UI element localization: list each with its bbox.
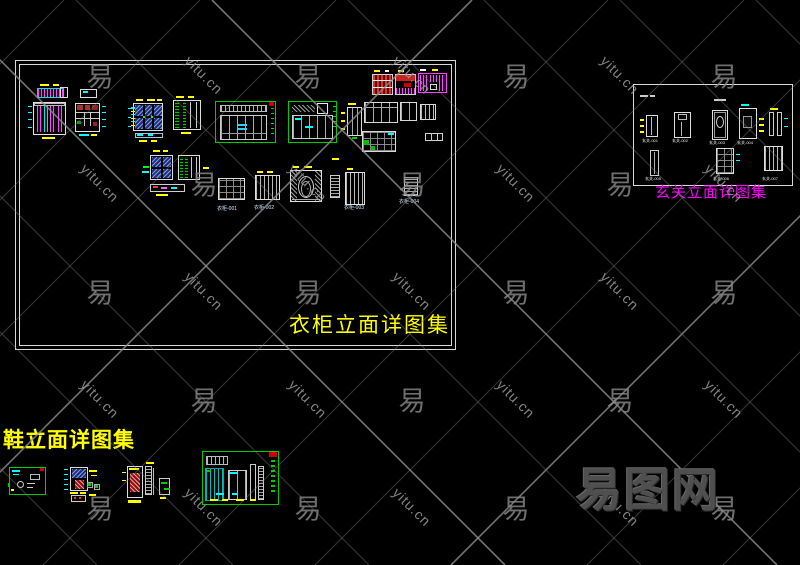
cad-shape: [83, 91, 88, 93]
cad-shape: [400, 102, 417, 121]
cad-shape: [317, 103, 328, 114]
cad-shape: [267, 171, 273, 173]
cad-shape: [292, 199, 320, 200]
cad-shape: [257, 171, 263, 173]
cad-shape: [159, 478, 170, 495]
cad-shape: [385, 70, 389, 72]
cad-shape: [89, 494, 96, 496]
cad-shape: [196, 157, 197, 178]
cad-shape: [75, 480, 84, 489]
cad-shape: [77, 105, 83, 110]
cad-shape: [148, 134, 153, 136]
cad-shape: [640, 119, 644, 121]
cad-shape: [64, 484, 68, 485]
drawing-label: 玄关-007: [762, 177, 778, 181]
cad-shape: [341, 120, 345, 122]
cad-shape: [196, 102, 197, 128]
cad-shape: [784, 126, 788, 127]
cad-shape: [76, 118, 99, 119]
cad-shape: [72, 469, 86, 478]
drawing-label: 玄关-005: [645, 177, 661, 181]
cad-shape: [271, 460, 275, 462]
entry-title: 玄关立面详图集: [655, 184, 767, 201]
cad-shape: [139, 140, 147, 142]
cad-shape: [332, 158, 339, 160]
cad-shape: [291, 171, 297, 201]
cad-shape: [183, 102, 186, 128]
cad-shape: [122, 480, 126, 481]
cad-shape: [357, 108, 358, 135]
cad-shape: [305, 126, 313, 128]
cad-shape: [205, 468, 224, 501]
cad-shape: [137, 134, 143, 136]
cad-shape: [164, 488, 170, 490]
cad-shape: [347, 107, 362, 136]
cad-shape: [157, 99, 162, 101]
cad-shape: [93, 122, 97, 126]
cad-shape: [40, 84, 49, 86]
cad-shape: [271, 470, 275, 472]
cad-shape: [221, 133, 266, 134]
cad-shape: [420, 75, 428, 91]
cad-shape: [271, 485, 275, 487]
cad-shape: [396, 88, 415, 94]
cad-shape: [153, 186, 158, 188]
cad-shape: [176, 96, 184, 98]
wardrobe-hatch-strip[interactable]: [404, 177, 418, 196]
cad-shape: [180, 157, 183, 178]
cad-shape: [271, 475, 275, 477]
cad-shape: [42, 137, 55, 139]
cad-shape: [650, 95, 655, 97]
cad-shape: [301, 181, 311, 197]
cad-shape: [53, 84, 59, 86]
drawing-label: 玄关-006: [713, 177, 729, 181]
cad-shape: [640, 131, 644, 133]
drawing-label: 玄关-002: [672, 139, 688, 143]
cad-shape: [333, 106, 336, 107]
cad-shape: [269, 452, 277, 457]
cad-shape: [84, 112, 85, 126]
cad-shape: [12, 470, 20, 472]
cad-shape: [143, 166, 149, 168]
cad-shape: [74, 497, 76, 499]
cad-shape: [151, 140, 157, 142]
cad-shape: [185, 157, 188, 178]
cad-shape: [271, 490, 275, 492]
cad-shape: [11, 489, 14, 491]
cad-shape: [352, 137, 357, 139]
cad-shape: [154, 118, 162, 129]
cad-shape: [27, 487, 33, 488]
cad-shape: [163, 150, 168, 152]
cad-shape: [152, 169, 161, 178]
cad-shape: [76, 112, 99, 113]
cad-shape: [716, 116, 724, 128]
cad-shape: [228, 470, 247, 500]
cad-shape: [37, 106, 42, 132]
cad-shape: [50, 106, 56, 132]
cad-shape: [142, 171, 149, 173]
cad-shape: [136, 99, 143, 101]
cad-shape: [315, 171, 321, 201]
cad-shape: [784, 118, 788, 119]
cad-shape: [203, 167, 209, 169]
cad-shape: [79, 134, 89, 136]
cad-shape: [129, 468, 139, 470]
cad-shape: [77, 121, 81, 124]
cad-shape: [17, 481, 24, 488]
cad-shape: [743, 116, 752, 128]
cad-shape: [181, 132, 191, 134]
cad-shape: [28, 127, 32, 128]
cad-shape: [373, 80, 392, 81]
cad-shape: [304, 166, 312, 168]
cad-shape: [27, 483, 35, 484]
cad-shape: [28, 112, 32, 113]
cad-shape: [64, 479, 68, 480]
cad-shape: [95, 485, 98, 488]
cad-shape: [430, 84, 437, 90]
cad-shape: [102, 126, 106, 127]
cad-shape: [145, 118, 152, 129]
wardrobe-striped-detail-1[interactable]: [255, 175, 280, 200]
cad-shape: [777, 112, 782, 136]
cad-shape: [347, 168, 353, 170]
cad-shape: [161, 482, 167, 484]
cad-shape: [8, 483, 10, 487]
cad-shape: [70, 492, 78, 494]
cad-shape: [295, 118, 301, 120]
cad-shape: [102, 106, 106, 107]
cad-shape: [40, 468, 44, 471]
cad-shape: [333, 121, 336, 122]
cad-shape: [640, 125, 644, 127]
cad-shape: [128, 126, 131, 127]
cad-shape: [292, 105, 315, 112]
cad-shape: [147, 99, 155, 101]
cad-shape: [437, 134, 438, 140]
cad-shape: [759, 124, 764, 126]
wardrobe-striped-detail-2[interactable]: [345, 172, 365, 205]
cad-shape: [207, 470, 211, 472]
cad-shape: [271, 108, 274, 109]
cad-shape: [333, 116, 336, 117]
cad-shape: [128, 108, 131, 109]
cad-shape: [238, 124, 247, 126]
cad-shape: [404, 83, 411, 87]
cad-shape: [271, 480, 275, 482]
cad-shape: [365, 107, 397, 108]
cad-shape: [171, 187, 177, 189]
cad-shape: [269, 102, 274, 106]
cad-shape: [250, 464, 256, 500]
cad-shape: [341, 128, 345, 130]
cad-shape: [341, 112, 345, 114]
cad-shape: [143, 116, 145, 118]
cad-shape: [432, 69, 438, 71]
cad-shape: [28, 106, 32, 107]
cad-shape: [371, 146, 375, 150]
cad-shape: [439, 75, 445, 91]
entry-detail-5[interactable]: [769, 112, 774, 136]
cad-shape: [28, 119, 32, 120]
cad-shape: [271, 113, 274, 114]
cad-shape: [222, 499, 228, 501]
cad-shape: [425, 133, 443, 141]
cad-shape: [122, 472, 126, 473]
cad-shape: [210, 499, 218, 501]
cad-shape: [220, 105, 267, 112]
cad-shape: [89, 470, 97, 472]
cad-shape: [330, 175, 340, 198]
cad-shape: [250, 499, 256, 501]
cad-shape: [88, 483, 91, 486]
drawing-label: 玄关-003: [709, 141, 725, 145]
cad-shape: [654, 152, 655, 174]
cad-shape: [188, 96, 194, 98]
cad-shape: [64, 474, 68, 475]
cad-shape: [714, 99, 726, 101]
cad-shape: [640, 95, 648, 97]
cad-shape: [128, 500, 141, 503]
cad-shape: [128, 117, 131, 118]
drawing-label: 玄关-001: [642, 139, 658, 143]
cad-shape: [736, 154, 740, 155]
cad-shape: [135, 118, 143, 129]
cad-shape: [90, 112, 91, 126]
cad-shape: [236, 499, 244, 501]
cad-shape: [44, 106, 48, 132]
yitu-logo: 易图网: [576, 454, 720, 520]
cad-shape: [85, 105, 90, 110]
cad-shape: [430, 75, 437, 82]
cad-shape: [60, 87, 68, 98]
cad-shape: [145, 105, 152, 116]
cad-shape: [759, 130, 764, 132]
cad-shape: [651, 117, 652, 135]
cad-shape: [759, 118, 764, 120]
cad-shape: [161, 187, 167, 189]
cad-shape: [398, 70, 404, 72]
cad-shape: [420, 104, 436, 120]
cad-shape: [146, 462, 154, 464]
shoe-title: 鞋立面详图集: [3, 429, 135, 453]
cad-shape: [30, 474, 40, 480]
cad-shape: [373, 87, 392, 88]
cad-shape: [396, 75, 415, 81]
cad-shape: [352, 108, 353, 135]
cad-shape: [130, 473, 140, 492]
cad-shape: [145, 466, 152, 495]
cad-shape: [80, 492, 86, 494]
cad-shape: [190, 102, 191, 128]
drawing-label: 衣柜-001: [217, 207, 237, 212]
cad-shape: [91, 134, 97, 136]
cad-shape: [163, 169, 171, 178]
cad-shape: [13, 474, 19, 475]
cad-shape: [152, 157, 161, 167]
cad-shape: [258, 466, 264, 500]
cad-shape: [206, 456, 228, 465]
drawing-label: 衣柜-003: [344, 206, 364, 211]
cad-shape: [271, 118, 274, 119]
cad-shape: [271, 465, 275, 467]
cad-preview-canvas: 衣柜-001衣柜-002衣柜-003衣柜-004玄关-001玄关-002玄关-0…: [0, 0, 800, 565]
wardrobe-grid-detail[interactable]: [218, 178, 245, 200]
cad-shape: [64, 489, 68, 490]
cad-shape: [175, 102, 179, 128]
cad-shape: [163, 157, 171, 167]
cad-shape: [191, 157, 192, 178]
cad-shape: [238, 128, 247, 130]
cad-shape: [420, 69, 426, 71]
cad-shape: [770, 108, 778, 110]
cad-shape: [58, 106, 62, 132]
cad-shape: [271, 128, 274, 129]
cad-shape: [333, 111, 336, 112]
cad-shape: [678, 114, 687, 120]
cad-shape: [364, 102, 398, 123]
cad-shape: [736, 160, 740, 161]
wardrobe-red-sheet-1[interactable]: [372, 74, 393, 95]
cad-shape: [91, 475, 97, 476]
cad-shape: [232, 493, 238, 495]
cad-shape: [374, 70, 380, 72]
entry-detail-1[interactable]: [646, 115, 658, 137]
cad-shape: [151, 116, 153, 118]
cad-shape: [216, 493, 224, 495]
cad-shape: [271, 123, 274, 124]
drawing-label: 玄关-004: [737, 141, 753, 145]
cad-shape: [741, 104, 749, 106]
cad-shape: [160, 497, 166, 499]
cad-shape: [102, 112, 106, 113]
cad-shape: [153, 150, 160, 152]
wardrobe-title: 衣柜立面详图集: [289, 314, 450, 338]
cad-shape: [230, 472, 238, 474]
drawing-label: 衣柜-002: [254, 206, 274, 211]
cad-shape: [348, 103, 356, 105]
cad-shape: [64, 469, 68, 470]
cad-shape: [333, 126, 336, 127]
cad-shape: [79, 497, 81, 499]
entry-detail-8[interactable]: [764, 146, 783, 171]
drawing-label: 衣柜-004: [399, 200, 419, 205]
cad-shape: [154, 105, 162, 116]
cad-shape: [102, 119, 106, 120]
cad-shape: [388, 133, 394, 135]
cad-shape: [153, 468, 154, 495]
cad-shape: [92, 105, 98, 110]
cad-shape: [364, 140, 369, 145]
cad-shape: [271, 133, 274, 134]
cad-shape: [135, 105, 143, 116]
cad-shape: [293, 166, 299, 168]
entry-detail-7[interactable]: [716, 148, 734, 174]
cad-shape: [681, 122, 682, 136]
cad-shape: [156, 194, 168, 196]
cad-shape: [431, 134, 432, 140]
